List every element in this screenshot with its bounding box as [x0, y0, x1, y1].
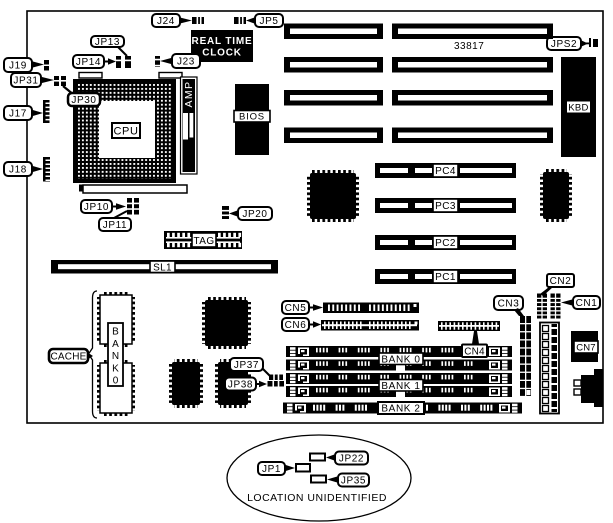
svg-text:CN7: CN7	[576, 343, 596, 354]
svg-text:A: A	[112, 339, 119, 350]
svg-text:J24: J24	[157, 16, 175, 27]
svg-text:BANK 1: BANK 1	[381, 381, 420, 392]
svg-text:SL1: SL1	[153, 262, 172, 273]
svg-text:AMP: AMP	[183, 81, 195, 108]
svg-text:JP1: JP1	[262, 464, 281, 475]
svg-text:JP38: JP38	[228, 380, 253, 391]
svg-text:TAG: TAG	[193, 236, 214, 247]
svg-text:JPS2: JPS2	[551, 39, 577, 50]
svg-text:CN1: CN1	[576, 298, 598, 309]
svg-text:PC2: PC2	[435, 238, 456, 249]
svg-text:0: 0	[113, 376, 119, 387]
svg-text:CN4: CN4	[464, 346, 485, 357]
svg-text:JP11: JP11	[103, 220, 127, 231]
svg-text:PC4: PC4	[435, 166, 456, 177]
svg-text:CLOCK: CLOCK	[202, 48, 242, 59]
svg-text:JP22: JP22	[339, 454, 364, 465]
svg-text:JP14: JP14	[76, 57, 101, 68]
svg-text:JP10: JP10	[84, 202, 109, 213]
svg-text:CN3: CN3	[498, 299, 520, 310]
svg-text:J18: J18	[9, 165, 27, 176]
svg-text:N: N	[112, 351, 119, 362]
svg-text:JP30: JP30	[71, 95, 96, 106]
svg-text:CPU: CPU	[113, 126, 138, 138]
svg-text:J19: J19	[9, 61, 27, 72]
svg-text:JP31: JP31	[13, 76, 38, 87]
svg-text:BANK 0: BANK 0	[381, 354, 420, 365]
svg-text:JP20: JP20	[242, 209, 267, 220]
svg-text:B: B	[112, 327, 119, 338]
svg-text:JP13: JP13	[95, 37, 120, 48]
svg-text:BANK 2: BANK 2	[381, 404, 420, 415]
svg-text:CN5: CN5	[285, 303, 307, 314]
svg-text:LOCATION UNIDENTIFIED: LOCATION UNIDENTIFIED	[247, 492, 387, 504]
svg-text:CN6: CN6	[285, 320, 307, 331]
svg-text:BIOS: BIOS	[239, 112, 265, 123]
svg-text:JP37: JP37	[234, 360, 259, 371]
svg-text:REAL TIME: REAL TIME	[192, 36, 253, 47]
svg-text:JP5: JP5	[259, 16, 278, 27]
svg-text:PC1: PC1	[435, 272, 456, 283]
svg-text:33817: 33817	[454, 41, 484, 52]
svg-text:K: K	[112, 363, 119, 374]
svg-text:J17: J17	[9, 109, 27, 120]
svg-text:CACHE: CACHE	[50, 352, 86, 363]
svg-text:JP35: JP35	[341, 476, 366, 487]
svg-text:KBD: KBD	[568, 103, 588, 114]
svg-text:PC3: PC3	[435, 201, 456, 212]
svg-text:CN2: CN2	[550, 276, 572, 287]
svg-text:J23: J23	[177, 57, 195, 68]
